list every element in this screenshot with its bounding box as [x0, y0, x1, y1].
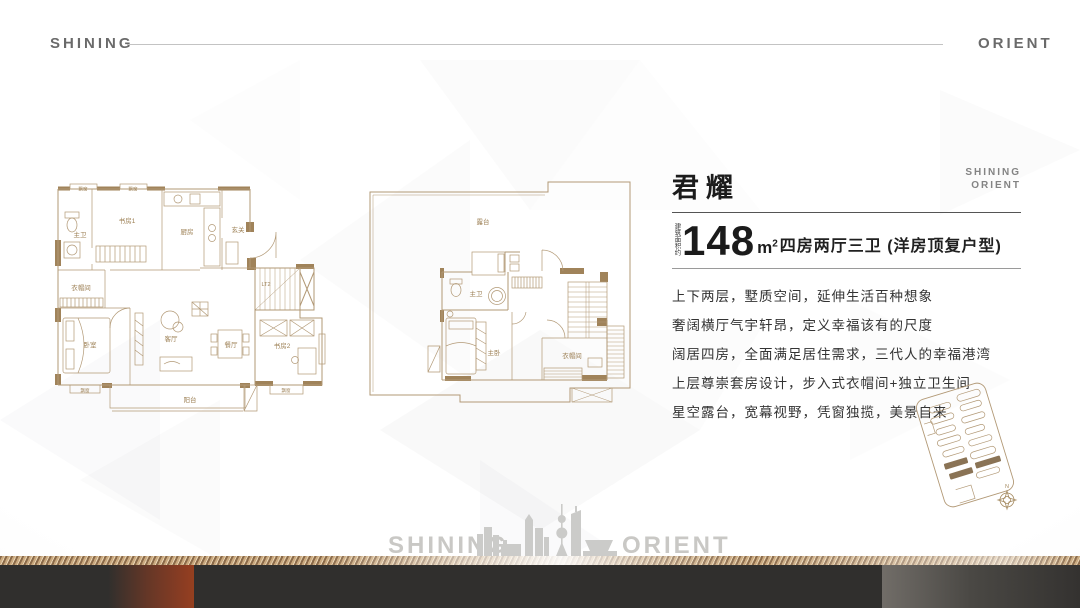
area-prefix-vertical: 建筑面积约	[672, 223, 680, 259]
room-label-elevator: LT2	[261, 282, 270, 288]
room-label-study1: 书房1	[119, 216, 136, 225]
room-label-bay-window: 飘窗	[129, 186, 138, 193]
site-keyplan: N	[905, 375, 1065, 525]
room-label-kitchen: 厨房	[181, 227, 194, 236]
area-value: 148	[682, 223, 755, 259]
room-label-cloakroom: 衣帽间	[71, 283, 91, 292]
floorplan-lower-wall-fills	[55, 187, 322, 389]
floorplan-lower-interior	[58, 184, 325, 411]
city-skyline-icon	[477, 504, 619, 556]
header-brand-right: ORIENT	[978, 35, 1053, 52]
room-label-bay-window: 飘窗	[81, 387, 90, 394]
room-label-master-bath: 主卫	[74, 230, 88, 239]
room-label-balcony: 阳台	[184, 395, 197, 404]
footer-bar-light-segment	[882, 565, 1080, 608]
room-label-study2: 书房2	[274, 341, 291, 350]
unit-title: 君耀	[672, 166, 740, 205]
gold-band-sheen	[0, 556, 1080, 565]
feature-line: 上下两层，墅质空间，延伸生活百种想象	[672, 285, 1021, 314]
feature-line: 奢阔横厅气宇轩昂，定义幸福该有的尺度	[672, 314, 1021, 343]
panel-divider-bottom	[672, 268, 1021, 269]
header-brand-left: SHINING	[50, 35, 134, 52]
room-label-dining: 餐厅	[225, 340, 239, 349]
room-label-master-bedroom: 主卧	[488, 348, 502, 357]
gold-braid-band	[0, 556, 1080, 565]
room-label-foyer: 玄关	[232, 225, 246, 234]
panel-brand-line1: SHINING	[965, 166, 1021, 179]
compass-north-label: N	[1005, 484, 1009, 490]
footer-dark-bar	[0, 565, 1080, 608]
keyplan-highlighted-units	[944, 448, 1003, 481]
room-label-bedroom: 卧室	[84, 340, 98, 349]
room-label-bay-window: 飘窗	[79, 186, 88, 193]
room-label-terrace: 露台	[477, 217, 490, 226]
area-unit: m2	[757, 238, 778, 258]
compass-icon	[998, 491, 1016, 509]
panel-divider-top	[672, 212, 1021, 213]
floorplan-lower-structure	[58, 189, 322, 411]
area-spec-row: 建筑面积约 148 m2 四房两厅三卫 (洋房顶复户型)	[672, 223, 1021, 259]
poster-canvas: SHINING ORIENT	[0, 0, 1080, 608]
room-label-living: 客厅	[165, 334, 179, 343]
panel-brand-line2: ORIENT	[965, 179, 1021, 192]
room-label-master-bath: 主卫	[470, 289, 484, 298]
area-description: 四房两厅三卫 (洋房顶复户型)	[780, 232, 1002, 256]
keyplan-building-block	[914, 381, 1016, 509]
header-divider	[128, 44, 943, 45]
floorplan-lower-level: 飘窗 飘窗 主卫 书房1 厨房 玄关 衣帽间 卧室 客厅 餐厅 书房2 阳台 L…	[50, 180, 340, 420]
room-label-cloakroom: 衣帽间	[562, 351, 582, 360]
room-label-bay-window: 飘窗	[282, 387, 291, 394]
floorplan-upper-level: 露台 主卫 主卧 衣帽间	[360, 160, 650, 430]
footer-bar-red-segment	[108, 565, 194, 608]
feature-line: 阔居四房，全面满足居住需求，三代人的幸福港湾	[672, 343, 1021, 372]
panel-brand-mark: SHINING ORIENT	[965, 166, 1021, 192]
